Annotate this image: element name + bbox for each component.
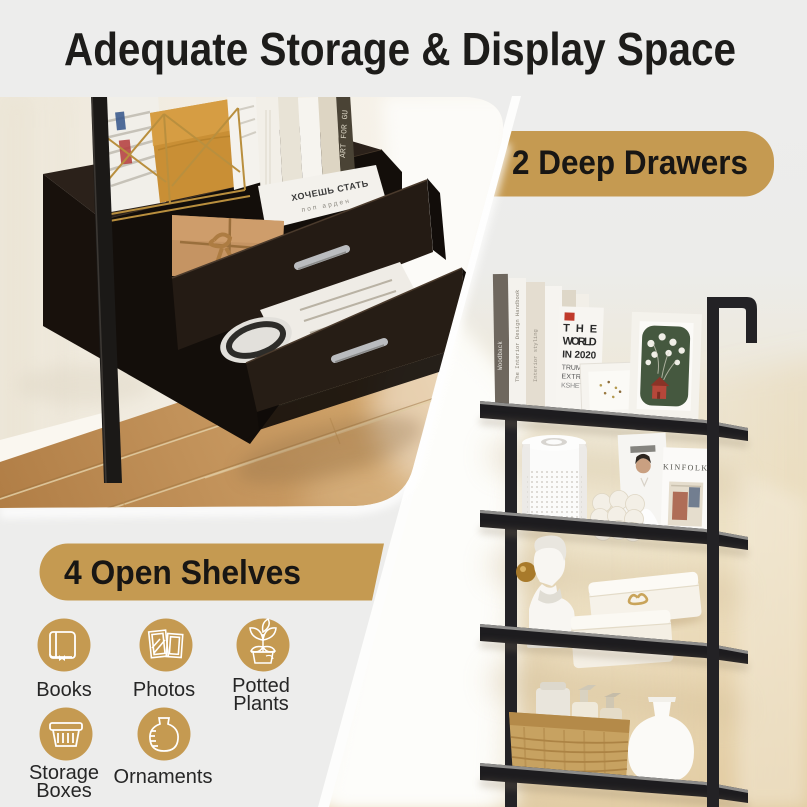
svg-text:Woodback: Woodback	[497, 341, 504, 370]
svg-text:KINFOLK: KINFOLK	[663, 462, 709, 473]
svg-text:THE: THE	[563, 322, 597, 335]
svg-text:WORLD: WORLD	[562, 335, 596, 348]
svg-text:IN 2020: IN 2020	[562, 349, 597, 361]
svg-text:Books: Books	[36, 679, 92, 701]
svg-text:2 Deep Drawers: 2 Deep Drawers	[512, 144, 748, 182]
svg-text:Photos: Photos	[133, 679, 195, 701]
svg-text:Adequate Storage & Display Spa: Adequate Storage & Display Space	[64, 23, 736, 75]
svg-text:Interior styling: Interior styling	[532, 329, 539, 382]
svg-text:4 Open Shelves: 4 Open Shelves	[64, 554, 301, 592]
svg-text:The Interior Design Handbook: The Interior Design Handbook	[514, 289, 521, 382]
svg-text:Plants: Plants	[233, 693, 289, 715]
svg-text:Ornaments: Ornaments	[114, 766, 213, 788]
svg-text:Boxes: Boxes	[36, 780, 92, 802]
